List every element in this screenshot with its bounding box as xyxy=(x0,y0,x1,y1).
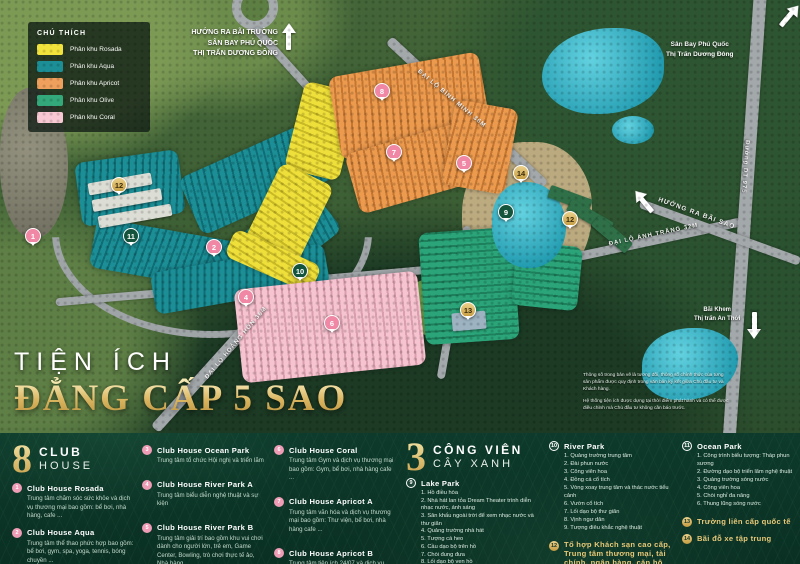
parks-title: CÔNG VIÊN xyxy=(433,444,523,458)
legend-swatch-aqua xyxy=(37,61,63,72)
item-name: Ocean Park xyxy=(697,442,742,451)
legend-row[interactable]: Phân khu Olive xyxy=(37,95,141,106)
amenities-panel: 8 CLUB HOUSE 1 Club House Rosada Trung t… xyxy=(0,433,800,564)
park-feature: 7. Lối dạo bộ thư giãn xyxy=(564,509,675,517)
item-name: Club House Coral xyxy=(289,446,358,455)
park-feature-list: 1. Quảng trường trung tâm2. Đài phun nướ… xyxy=(564,453,675,533)
item-description: Trung tâm chăm sóc sức khỏe và dịch vụ t… xyxy=(27,495,134,521)
item-name: Lake Park xyxy=(421,479,460,488)
item-number-badge: 6 xyxy=(274,445,284,455)
item-name: Club House Apricot A xyxy=(289,497,373,506)
park-feature: 1. Quảng trường trung tâm xyxy=(564,453,675,461)
park-feature-list: 1. Công trình biểu tượng: Tháp phun sươn… xyxy=(697,453,794,509)
club-house-subtitle: HOUSE xyxy=(39,460,93,473)
item-name: Club House Ocean Park xyxy=(157,446,249,455)
item-number-badge: 10 xyxy=(549,441,559,451)
item-number-badge: 8 xyxy=(274,548,284,558)
lake-north xyxy=(542,28,664,114)
disclaimer-paragraph: Thông số trong bản vẽ là tương đối, thôn… xyxy=(583,373,729,394)
item-name: Club House Apricot B xyxy=(289,549,373,558)
legend-swatch-apricot xyxy=(37,78,63,89)
map-marker-5[interactable]: 5 xyxy=(456,155,472,171)
park-feature: 1. Hồ điều hòa xyxy=(421,490,542,498)
item-number-badge: 1 xyxy=(12,483,22,493)
club-house-item[interactable]: 3 Club House Ocean Park Trung tâm tổ chứ… xyxy=(142,445,266,466)
item-description: Trung tâm thể thao phức hợp bao gồm: bể … xyxy=(27,540,134,564)
title-line-1: TIỆN ÍCH xyxy=(14,348,347,377)
club-house-item[interactable]: 1 Club House Rosada Trung tâm chăm sóc s… xyxy=(12,483,134,521)
map-marker-12[interactable]: 12 xyxy=(562,211,578,227)
club-house-count: 8 xyxy=(12,441,32,477)
club-house-item[interactable]: 7 Club House Apricot A Trung tâm văn hóa… xyxy=(274,497,398,535)
park-feature: 3. Công viên hoa xyxy=(564,469,675,477)
panel-column-club-3: 6 Club House Coral Trung tâm Gym và dịch… xyxy=(274,433,398,564)
parking-item[interactable]: 14 Bãi đỗ xe tập trung xyxy=(682,534,794,544)
item-number-badge: 3 xyxy=(142,445,152,455)
club-house-item[interactable]: 8 Club House Apricot B Trung tâm tiện íc… xyxy=(274,548,398,564)
legend-swatch-olive xyxy=(37,95,63,106)
hotel-complex-item[interactable]: 12 Tổ hợp Khách sạn cao cấp, Trung tâm t… xyxy=(549,540,675,564)
map-marker-2[interactable]: 2 xyxy=(206,239,222,255)
item-description: Trung tâm tổ chức Hội nghị và triển lãm xyxy=(157,457,266,466)
item-name: Club House River Park A xyxy=(157,480,253,489)
map-marker-6[interactable]: 6 xyxy=(324,315,340,331)
park-group-river-park[interactable]: 10 River Park 1. Quảng trường trung tâm2… xyxy=(549,441,675,533)
item-number-badge: 14 xyxy=(682,534,692,544)
item-name: Club House Aqua xyxy=(27,528,95,537)
park-feature: 4. Quảng trường nhà hát xyxy=(421,528,542,536)
legend: CHÚ THÍCH Phân khu Rosada Phân khu Aqua … xyxy=(28,22,150,132)
legend-swatch-coral xyxy=(37,112,63,123)
park-feature: 5. Vòng xoay trung tâm và thác nước tiểu… xyxy=(564,485,675,501)
item-number-badge: 13 xyxy=(682,517,692,527)
park-feature: 2. Đường dạo bộ triển lãm nghệ thuật xyxy=(697,469,794,477)
item-name: River Park xyxy=(564,442,605,451)
item-name: Tổ hợp Khách sạn cao cấp, Trung tâm thươ… xyxy=(564,540,675,564)
park-feature: 5. Tượng cá heo xyxy=(421,536,542,544)
legend-label: Phân khu Apricot xyxy=(70,80,119,87)
arrow-down-icon xyxy=(752,312,757,330)
park-feature: 3. Quảng trường sóng nước xyxy=(697,477,794,485)
club-house-title: CLUB xyxy=(39,446,93,460)
item-description: Trung tâm biểu diễn nghệ thuật và sự kiệ… xyxy=(157,492,266,509)
roundabout xyxy=(232,0,278,30)
masterplan-poster: HƯỚNG RA BÃI TRƯỜNG SÂN BAY PHÚ QUỐC THỊ… xyxy=(0,0,800,564)
map-marker-10[interactable]: 10 xyxy=(292,263,308,279)
map-marker-1[interactable]: 1 xyxy=(25,228,41,244)
legend-label: Phân khu Coral xyxy=(70,114,115,121)
item-description: Trung tâm tiện ích 24/07 và dịch vụ thươ… xyxy=(289,560,398,564)
club-house-item[interactable]: 6 Club House Coral Trung tâm Gym và dịch… xyxy=(274,445,398,483)
legend-title: CHÚ THÍCH xyxy=(37,30,141,37)
club-house-item[interactable]: 5 Club House River Park B Trung tâm giải… xyxy=(142,523,266,564)
arrow-up-icon xyxy=(286,32,291,50)
park-feature: 3. Sân khấu ngoài trời để xem nhạc nước … xyxy=(421,513,542,528)
map-marker-14[interactable]: 14 xyxy=(513,165,529,181)
club-house-item[interactable]: 2 Club House Aqua Trung tâm thể thao phứ… xyxy=(12,528,134,564)
club-house-item[interactable]: 4 Club House River Park A Trung tâm biểu… xyxy=(142,480,266,509)
legend-label: Phân khu Olive xyxy=(70,97,114,104)
legend-row[interactable]: Phân khu Apricot xyxy=(37,78,141,89)
legend-label: Phân khu Rosada xyxy=(70,46,122,53)
park-feature-list: 1. Hồ điều hòa2. Nhà hát lan tỏa Dream T… xyxy=(421,490,542,564)
item-description: Trung tâm văn hóa và dịch vụ thương mại … xyxy=(289,509,398,535)
item-number-badge: 12 xyxy=(549,541,559,551)
title-line-2: ĐẲNG CẤP 5 SAO xyxy=(14,377,347,420)
school-item[interactable]: 13 Trường liên cấp quốc tế xyxy=(682,517,794,527)
arrow-northeast-icon xyxy=(779,10,794,27)
park-feature: 9. Tượng điêu khắc nghệ thuật xyxy=(564,525,675,533)
legend-swatch-rosada xyxy=(37,44,63,55)
legend-label: Phân khu Aqua xyxy=(70,63,114,70)
item-description: Trung tâm Gym và dịch vụ thương mại bao … xyxy=(289,457,398,483)
map-marker-11[interactable]: 11 xyxy=(123,228,139,244)
item-number-badge: 2 xyxy=(12,528,22,538)
map-marker-13[interactable]: 13 xyxy=(460,302,476,318)
direction-label-duong-dong: Sân Bay Phú Quốc Thị Trấn Dương Đông xyxy=(666,40,733,60)
map-marker-12[interactable]: 12 xyxy=(111,177,127,193)
park-feature: 4. Công viên hoa xyxy=(697,485,794,493)
pond-small xyxy=(612,116,654,144)
map-marker-9[interactable]: 9 xyxy=(498,204,514,220)
panel-column-club-1: 8 CLUB HOUSE 1 Club House Rosada Trung t… xyxy=(12,433,134,564)
park-feature: 2. Nhà hát lan tỏa Dream Theater trình d… xyxy=(421,498,542,513)
park-feature: 6. Vườn cổ tích xyxy=(564,501,675,509)
park-feature: 2. Đài phun nước xyxy=(564,461,675,469)
parks-count: 3 xyxy=(406,439,426,475)
park-feature: 7. Chòi đung đưa xyxy=(421,552,542,560)
park-feature: 1. Công trình biểu tượng: Tháp phun sươn… xyxy=(697,453,794,469)
legend-row[interactable]: Phân khu Rosada xyxy=(37,44,141,55)
direction-label-airport: HƯỚNG RA BÃI TRƯỜNG SÂN BAY PHÚ QUỐC THỊ… xyxy=(150,28,278,60)
panel-column-parks-3: 11 Ocean Park 1. Công trình biểu tượng: … xyxy=(682,433,794,564)
disclaimer: Thông số trong bản vẽ là tương đối, thôn… xyxy=(583,373,729,418)
club-house-header: 8 CLUB HOUSE xyxy=(12,441,134,477)
map-marker-8[interactable]: 8 xyxy=(374,83,390,99)
map-marker-7[interactable]: 7 xyxy=(386,144,402,160)
item-name: Trường liên cấp quốc tế xyxy=(697,517,791,526)
disclaimer-paragraph: Hệ thống tiện ích được dựng tại thời điể… xyxy=(583,399,729,413)
item-name: Club House Rosada xyxy=(27,484,104,493)
panel-column-parks-1: 3 CÔNG VIÊN CÂY XANH 9 Lake Park 1. Hồ đ… xyxy=(406,433,542,564)
park-feature: 8. Lối dạo bộ ven hồ xyxy=(421,559,542,564)
park-feature: 5. Chòi nghỉ đa năng xyxy=(697,493,794,501)
item-number-badge: 5 xyxy=(142,523,152,533)
panel-column-club-2: 3 Club House Ocean Park Trung tâm tổ chứ… xyxy=(142,433,266,564)
park-feature: 8. Vịnh ngư dân xyxy=(564,517,675,525)
masterplan-map[interactable]: HƯỚNG RA BÃI TRƯỜNG SÂN BAY PHÚ QUỐC THỊ… xyxy=(0,0,800,433)
panel-column-parks-2: 10 River Park 1. Quảng trường trung tâm2… xyxy=(549,433,675,564)
legend-row[interactable]: Phân khu Aqua xyxy=(37,61,141,72)
item-number-badge: 9 xyxy=(406,478,416,488)
park-feature: 4. Đồng cá cổ tích xyxy=(564,477,675,485)
park-group-ocean-park[interactable]: 11 Ocean Park 1. Công trình biểu tượng: … xyxy=(682,441,794,509)
item-number-badge: 4 xyxy=(142,480,152,490)
park-group-lake-park[interactable]: 9 Lake Park 1. Hồ điều hòa2. Nhà hát lan… xyxy=(406,478,542,564)
item-name: Bãi đỗ xe tập trung xyxy=(697,534,771,543)
direction-label-bai-khem: Bãi Khem Thị trấn An Thới xyxy=(694,306,740,324)
legend-row[interactable]: Phân khu Coral xyxy=(37,112,141,123)
item-name: Club House River Park B xyxy=(157,523,253,532)
parks-header: 3 CÔNG VIÊN CÂY XANH xyxy=(406,439,542,475)
map-marker-4[interactable]: 4 xyxy=(238,289,254,305)
item-number-badge: 11 xyxy=(682,441,692,451)
park-feature: 6. Thung lũng sóng nước xyxy=(697,501,794,509)
page-title: TIỆN ÍCH ĐẲNG CẤP 5 SAO xyxy=(14,348,347,420)
parks-subtitle: CÂY XANH xyxy=(433,458,523,471)
item-description: Trung tâm giải trí bao gồm khu vui chơi … xyxy=(157,535,266,564)
item-number-badge: 7 xyxy=(274,497,284,507)
park-feature: 6. Cầu dạo bộ trên hồ xyxy=(421,544,542,552)
